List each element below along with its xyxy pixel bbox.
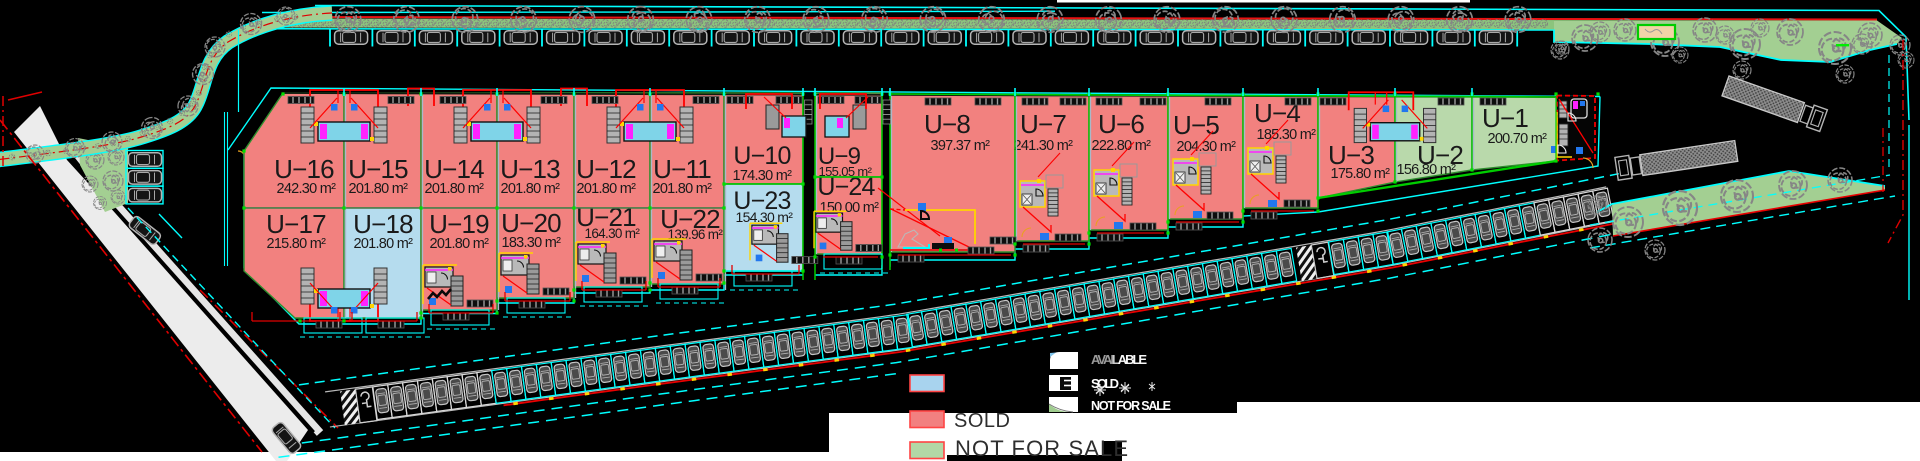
svg-text:174.30 m²: 174.30 m² — [733, 168, 793, 184]
svg-text:U−19: U−19 — [429, 209, 489, 239]
svg-text:156.80 m²: 156.80 m² — [1397, 162, 1457, 178]
svg-text:241.30 m²: 241.30 m² — [1014, 138, 1074, 154]
svg-text:U−15: U−15 — [348, 154, 408, 184]
svg-text:U−8: U−8 — [924, 109, 970, 139]
svg-text:201.80 m²: 201.80 m² — [653, 181, 713, 197]
svg-text:201.80 m²: 201.80 m² — [349, 181, 409, 197]
svg-text:U−12: U−12 — [576, 154, 636, 184]
svg-text:U−1: U−1 — [1482, 103, 1528, 133]
svg-text:215.80 m²: 215.80 m² — [267, 236, 327, 252]
svg-text:SOLD: SOLD — [954, 410, 1010, 432]
svg-text:U−5: U−5 — [1173, 110, 1219, 140]
svg-text:U−7: U−7 — [1020, 109, 1066, 139]
svg-text:200.70 m²: 200.70 m² — [1488, 131, 1548, 147]
svg-text:SOLD: SOLD — [1091, 376, 1119, 391]
svg-text:201.80 m²: 201.80 m² — [430, 236, 490, 252]
svg-text:201.80 m²: 201.80 m² — [425, 181, 485, 197]
svg-text:U−20: U−20 — [501, 208, 561, 238]
svg-text:AVAILABLE: AVAILABLE — [1091, 352, 1147, 367]
svg-text:U−17: U−17 — [266, 209, 326, 239]
svg-text:U−11: U−11 — [653, 154, 711, 184]
svg-text:U−13: U−13 — [500, 154, 560, 184]
svg-text:NOT FOR SALE: NOT FOR SALE — [955, 436, 1129, 461]
svg-text:U−16: U−16 — [274, 154, 334, 184]
svg-text:185.30 m²: 185.30 m² — [1257, 127, 1317, 143]
svg-text:201.80 m²: 201.80 m² — [577, 181, 637, 197]
svg-text:183.30 m²: 183.30 m² — [502, 235, 562, 251]
svg-text:U−10: U−10 — [733, 142, 790, 170]
svg-text:201.80 m²: 201.80 m² — [501, 181, 561, 197]
svg-text:397.37 m²: 397.37 m² — [931, 138, 991, 154]
svg-text:164.30 m²: 164.30 m² — [585, 226, 641, 241]
svg-text:242.30 m²: 242.30 m² — [277, 181, 337, 197]
svg-text:139.96 m²: 139.96 m² — [668, 227, 724, 242]
svg-text:U−18: U−18 — [353, 209, 413, 239]
svg-text:175.80 m²: 175.80 m² — [1331, 166, 1391, 182]
svg-text:NOT FOR SALE: NOT FOR SALE — [1091, 399, 1171, 413]
svg-text:U−14: U−14 — [424, 154, 484, 184]
svg-text:222.80 m²: 222.80 m² — [1092, 138, 1152, 154]
svg-text:U−6: U−6 — [1098, 109, 1144, 139]
svg-text:201.80 m²: 201.80 m² — [354, 236, 414, 252]
